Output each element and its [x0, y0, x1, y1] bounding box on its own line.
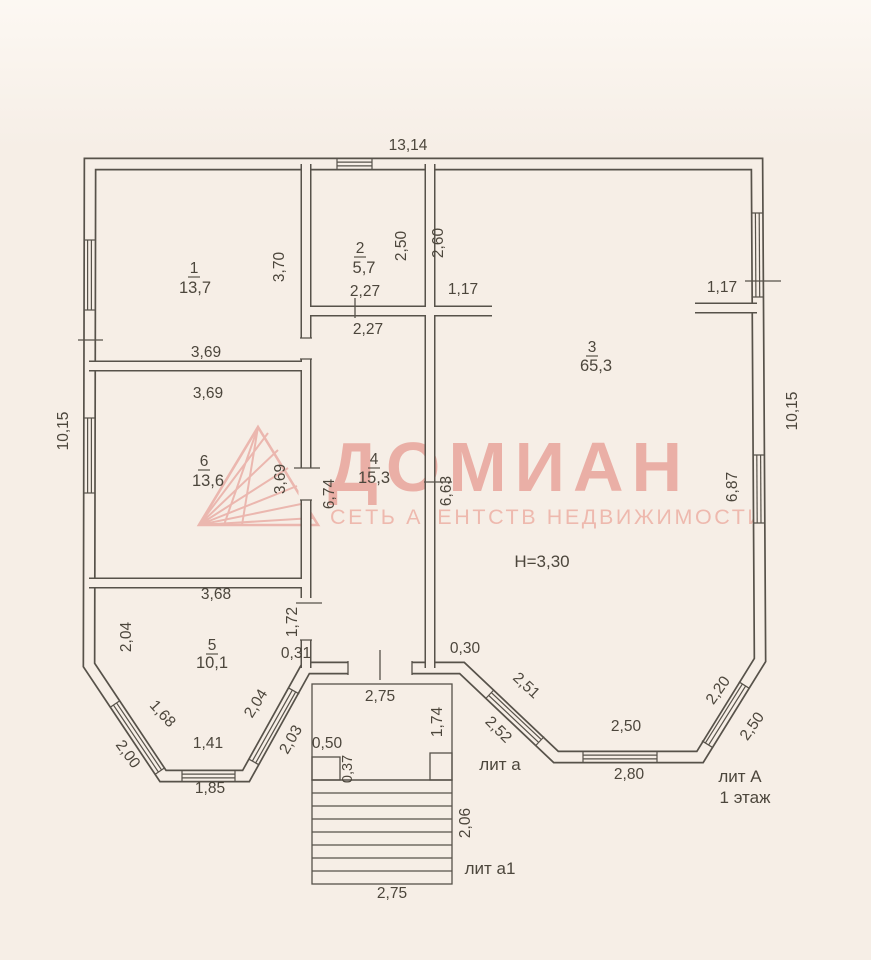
dim-off-right: 0,30: [450, 640, 481, 657]
dim-top-width: 13,14: [389, 137, 428, 154]
room-3-number: 3: [588, 339, 597, 356]
dim-r5-right: 1,72: [284, 607, 301, 637]
note-ceiling-height: H=3,30: [514, 552, 569, 571]
note-lit-A: лит А: [718, 767, 762, 786]
dim-left-height: 10,15: [55, 412, 72, 451]
dim-porch-step-d: 0,37: [340, 755, 356, 783]
dim-r3-wall-left: 2,60: [430, 228, 447, 259]
dim-off-left: 0,31: [281, 645, 311, 662]
floor-plan-canvas: ДОМИАН СЕТЬ АГЕНТСТВ НЕДВИЖИМОСТИ 13,14 …: [0, 0, 871, 960]
watermark-brand: ДОМИАН: [328, 428, 690, 506]
watermark-tagline: СЕТЬ АГЕНТСТВ НЕДВИЖИМОСТИ: [330, 505, 765, 529]
dim-r2-height: 2,50: [393, 231, 410, 262]
dim-bay-r-bottom: 2,50: [611, 718, 642, 735]
dim-r1-width: 3,69: [191, 344, 221, 361]
dim-r6-width: 3,69: [193, 385, 223, 402]
dim-r5-width: 3,68: [201, 586, 231, 603]
dim-bay-l-bottom: 1,41: [193, 735, 223, 752]
dim-hall-right: 6,63: [438, 476, 455, 506]
room-1-area: 13,7: [179, 279, 211, 297]
room-4-number: 4: [370, 451, 379, 468]
dim-bay-r-bottom-out: 2,80: [614, 766, 645, 783]
room-5-number: 5: [208, 637, 217, 654]
dim-r5-left: 2,04: [118, 622, 135, 653]
dim-r3-stub-right: 1,17: [707, 279, 737, 296]
dim-porch-side: 1,74: [429, 707, 446, 738]
room-6-area: 13,6: [192, 472, 224, 490]
room-2-number: 2: [356, 240, 365, 257]
room-3-area: 65,3: [580, 357, 612, 375]
dim-bay-l-bottom-out: 1,85: [195, 780, 225, 797]
note-lit-a1: лит а1: [465, 859, 516, 878]
dim-porch-step-w: 0,50: [312, 735, 343, 752]
dim-r6-height: 3,69: [272, 464, 289, 494]
dim-r3-stub-left: 1,17: [448, 281, 478, 298]
dim-hall-width: 2,27: [353, 321, 383, 338]
dim-stairs-width: 2,75: [377, 885, 407, 902]
dim-porch-width: 2,75: [365, 688, 395, 705]
room-2-area: 5,7: [353, 259, 376, 277]
room-1-number: 1: [190, 260, 199, 277]
dim-r2-width: 2,27: [350, 283, 380, 300]
room-4-area: 15,3: [358, 469, 390, 487]
room-5-area: 10,1: [196, 654, 228, 672]
scan-light-band: [0, 0, 871, 150]
dim-stairs-depth: 2,06: [457, 808, 474, 838]
dim-right-height: 10,15: [784, 392, 801, 431]
note-floor: 1 этаж: [720, 788, 772, 807]
note-lit-a: лит а: [479, 755, 521, 774]
dim-hall-left: 6,74: [321, 479, 338, 510]
room-6-number: 6: [200, 453, 209, 470]
dim-r3-wall-right: 6,87: [724, 472, 741, 502]
dim-r1-height: 3,70: [271, 252, 288, 283]
